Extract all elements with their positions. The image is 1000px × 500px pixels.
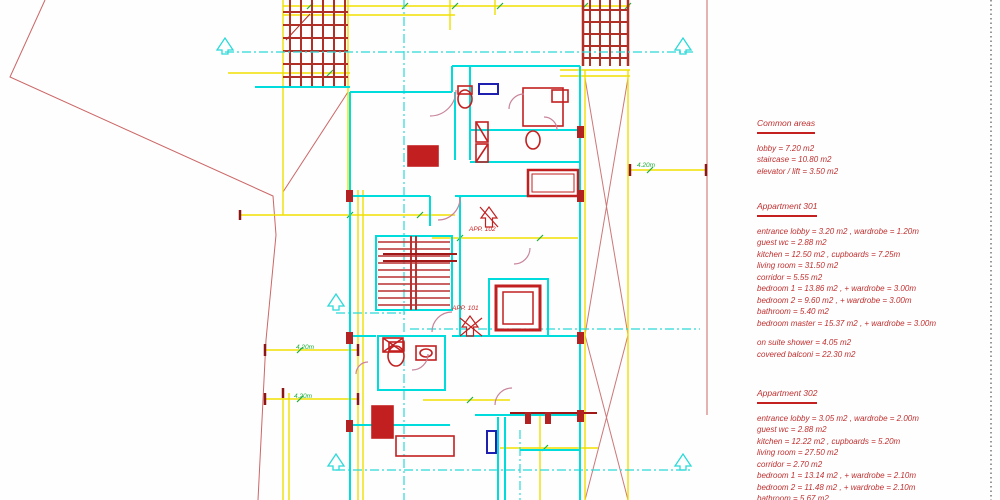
floorplan-sheet: APP. 102 APP. 101 4.20m 4.20m 4.20m Comm… [0,0,1000,500]
legend-line: living room = 31.50 m2 [757,260,936,272]
legend-line: bedroom 1 = 13.14 m2 , + wardrobe = 2.10… [757,470,919,482]
legend-line: staircase = 10.80 m2 [757,154,838,166]
centerlines [225,0,700,500]
dimension-label: 4.20m [296,344,314,351]
pergola-grid-right [583,0,628,66]
legend-line: on suite shower = 4.05 m2 [757,337,936,349]
dimension-ticks [240,164,706,405]
legend-section-apartment-301: Appartment 301 entrance lobby = 3.20 m2 … [757,201,936,360]
dimension-lines [228,0,706,500]
legend-line: corridor = 2.70 m2 [757,459,919,471]
legend-line: bedroom 2 = 11.48 m2 , + wardrobe = 2.10… [757,482,919,494]
apartment-102-label: APP. 102 [469,226,496,233]
legend-line: living room = 27.50 m2 [757,447,919,459]
legend-title: Appartment 302 [757,388,817,404]
legend-line: bedroom master = 15.37 m2 , + wardrobe =… [757,318,936,330]
legend-line: bedroom 2 = 9.60 m2 , + wardrobe = 3.00m [757,295,936,307]
legend-line: entrance lobby = 3.20 m2 , wardrobe = 1.… [757,226,936,238]
legend-line: bathroom = 5.67 m2 [757,493,919,500]
legend-line: bedroom 1 = 13.86 m2 , + wardrobe = 3.00… [757,283,936,295]
staircase [378,236,450,310]
legend-line: entrance lobby = 3.05 m2 , wardrobe = 2.… [757,413,919,425]
legend-title: Common areas [757,118,815,134]
dimension-label: 4.20m [294,393,312,400]
legend-line: bathroom = 5.40 m2 [757,306,936,318]
legend-line: covered balconi = 22.30 m2 [757,349,936,361]
elevator [496,286,540,330]
legend-section-apartment-302: Appartment 302 entrance lobby = 3.05 m2 … [757,388,919,500]
legend-line: lobby = 7.20 m2 [757,143,838,155]
legend-title: Appartment 301 [757,201,817,217]
legend-line: elevator / lift = 3.50 m2 [757,166,838,178]
legend-line: guest wc = 2.88 m2 [757,424,919,436]
legend-line: kitchen = 12.22 m2 , cupboards = 5.20m [757,436,919,448]
balcony-x-braces [585,78,628,500]
apartment-101-label: APP. 101 [452,305,479,312]
legend-line: guest wc = 2.88 m2 [757,237,936,249]
legend-section-common-areas: Common areas lobby = 7.20 m2 staircase =… [757,118,838,177]
dimension-label: 4.20m [637,162,655,169]
legend-line: kitchen = 12.50 m2 , cupboards = 7.25m [757,249,936,261]
legend-line: corridor = 5.55 m2 [757,272,936,284]
